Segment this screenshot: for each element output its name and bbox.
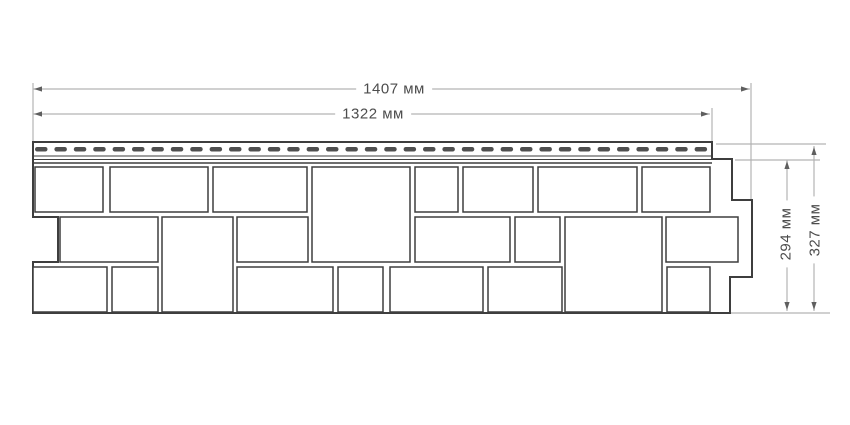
stone-block	[60, 217, 158, 262]
dimension-arrow-icon	[784, 302, 789, 310]
nail-slot	[617, 147, 630, 152]
nail-slot	[481, 147, 494, 152]
dimension-arrow-icon	[34, 111, 42, 116]
nail-slot	[462, 147, 475, 152]
nail-slot	[578, 147, 591, 152]
nail-slot	[307, 147, 320, 152]
nail-slot	[501, 147, 513, 152]
stone-block	[33, 267, 107, 312]
stone-block	[415, 167, 458, 212]
stone-block	[213, 167, 307, 212]
stone-block	[162, 217, 233, 312]
nail-slot	[268, 147, 281, 152]
nail-slot	[54, 147, 67, 152]
nail-slot	[74, 147, 87, 152]
nail-slot	[442, 147, 455, 152]
nail-slot	[326, 147, 339, 152]
nail-slot	[171, 147, 184, 152]
nail-slot	[93, 147, 106, 152]
stone-block	[237, 267, 333, 312]
nail-slot	[675, 147, 688, 152]
nail-slot	[636, 147, 649, 152]
dimension-arrow-icon	[784, 161, 789, 169]
nail-slot	[229, 147, 242, 152]
stone-block	[415, 217, 510, 262]
stone-block	[565, 217, 662, 312]
stone-block	[312, 167, 410, 262]
dimension-arrow-icon	[811, 147, 816, 155]
nail-slot	[423, 147, 436, 152]
nail-slot	[539, 147, 552, 152]
nail-slot	[520, 147, 533, 152]
dimension-label-outer-width: 1407 мм	[356, 80, 432, 99]
dimension-label-inner-height: 294 мм	[777, 201, 796, 268]
nail-slot	[598, 147, 611, 152]
nail-slot	[695, 147, 708, 152]
nail-slot	[287, 147, 300, 152]
nail-slot	[113, 147, 126, 152]
nail-slot	[190, 147, 203, 152]
stone-block	[463, 167, 533, 212]
nail-slot	[132, 147, 145, 152]
stone-block	[35, 167, 103, 212]
stone-block	[338, 267, 383, 312]
stone-block	[237, 217, 308, 262]
dimension-arrow-icon	[811, 302, 816, 310]
nail-slot	[345, 147, 358, 152]
nail-slot	[404, 147, 417, 152]
panel-drawing-svg	[0, 0, 850, 425]
nail-slot	[384, 147, 397, 152]
dimension-label-inner-width: 1322 мм	[335, 105, 411, 124]
dimension-label-outer-height: 327 мм	[806, 197, 825, 264]
stone-block	[390, 267, 483, 312]
stone-block	[538, 167, 637, 212]
stone-block	[515, 217, 560, 262]
stone-block	[110, 167, 208, 212]
stone-block	[666, 217, 738, 262]
nail-slot	[248, 147, 261, 152]
stone-block	[642, 167, 710, 212]
nail-slot	[365, 147, 378, 152]
drawing-canvas: 1407 мм 1322 мм 294 мм 327 мм	[0, 0, 850, 425]
stone-block	[112, 267, 158, 312]
nail-slot	[656, 147, 669, 152]
nail-slot	[151, 147, 164, 152]
nail-slot	[35, 147, 48, 152]
stone-block	[488, 267, 562, 312]
dimension-arrow-icon	[741, 86, 749, 91]
nail-slot	[210, 147, 223, 152]
nail-slot	[559, 147, 572, 152]
dimension-arrow-icon	[701, 111, 709, 116]
dimension-arrow-icon	[34, 86, 42, 91]
stone-block	[667, 267, 710, 312]
